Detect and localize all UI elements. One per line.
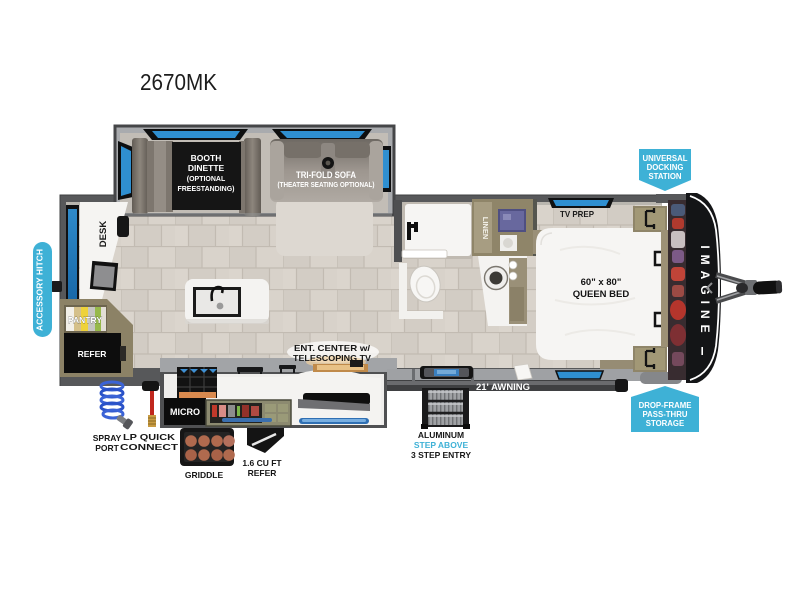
svg-text:(THEATER SEATING OPTIONAL): (THEATER SEATING OPTIONAL): [278, 182, 375, 189]
svg-text:ACCESSORY HITCH: ACCESSORY HITCH: [35, 249, 45, 331]
svg-text:ENT. CENTER w/: ENT. CENTER w/: [294, 343, 371, 353]
svg-text:2670MK: 2670MK: [140, 69, 217, 95]
svg-text:MICRO: MICRO: [170, 407, 200, 417]
svg-text:UNIVERSAL: UNIVERSAL: [642, 154, 687, 163]
svg-text:DROP-FRAME: DROP-FRAME: [639, 401, 692, 410]
svg-text:TRI-FOLD SOFA: TRI-FOLD SOFA: [296, 170, 356, 180]
svg-text:DOCKING: DOCKING: [647, 163, 684, 172]
svg-text:BOOTH: BOOTH: [191, 153, 222, 163]
svg-text:PASS-THRU: PASS-THRU: [643, 410, 688, 419]
svg-text:LINEN: LINEN: [481, 217, 490, 240]
svg-text:21' AWNING: 21' AWNING: [476, 382, 530, 393]
svg-text:STATION: STATION: [648, 172, 681, 181]
svg-text:(OPTIONAL: (OPTIONAL: [187, 176, 226, 183]
svg-text:DINETTE: DINETTE: [188, 163, 225, 173]
svg-text:PORT: PORT: [95, 443, 119, 453]
svg-text:GRIDDLE: GRIDDLE: [185, 470, 224, 480]
svg-text:LP QUICK: LP QUICK: [123, 432, 176, 442]
svg-text:3 STEP ENTRY: 3 STEP ENTRY: [411, 450, 471, 460]
svg-text:DESK: DESK: [98, 221, 109, 248]
svg-text:ALUMINUM: ALUMINUM: [418, 430, 464, 440]
svg-text:QUEEN BED: QUEEN BED: [573, 289, 630, 300]
svg-text:STORAGE: STORAGE: [646, 419, 684, 428]
svg-text:FREESTANDING): FREESTANDING): [177, 186, 234, 193]
svg-text:CONNECT: CONNECT: [120, 442, 179, 452]
svg-text:SPRAY: SPRAY: [93, 433, 122, 443]
svg-text:STEP ABOVE: STEP ABOVE: [414, 440, 469, 450]
svg-text:PANTRY: PANTRY: [68, 315, 102, 325]
svg-text:TELESCOPING TV: TELESCOPING TV: [293, 353, 371, 363]
svg-text:REFER: REFER: [248, 468, 277, 478]
svg-text:TV PREP: TV PREP: [560, 209, 594, 219]
svg-text:REFER: REFER: [78, 349, 107, 359]
svg-text:60" x 80": 60" x 80": [581, 277, 622, 288]
svg-text:1.6 CU FT: 1.6 CU FT: [242, 458, 282, 468]
